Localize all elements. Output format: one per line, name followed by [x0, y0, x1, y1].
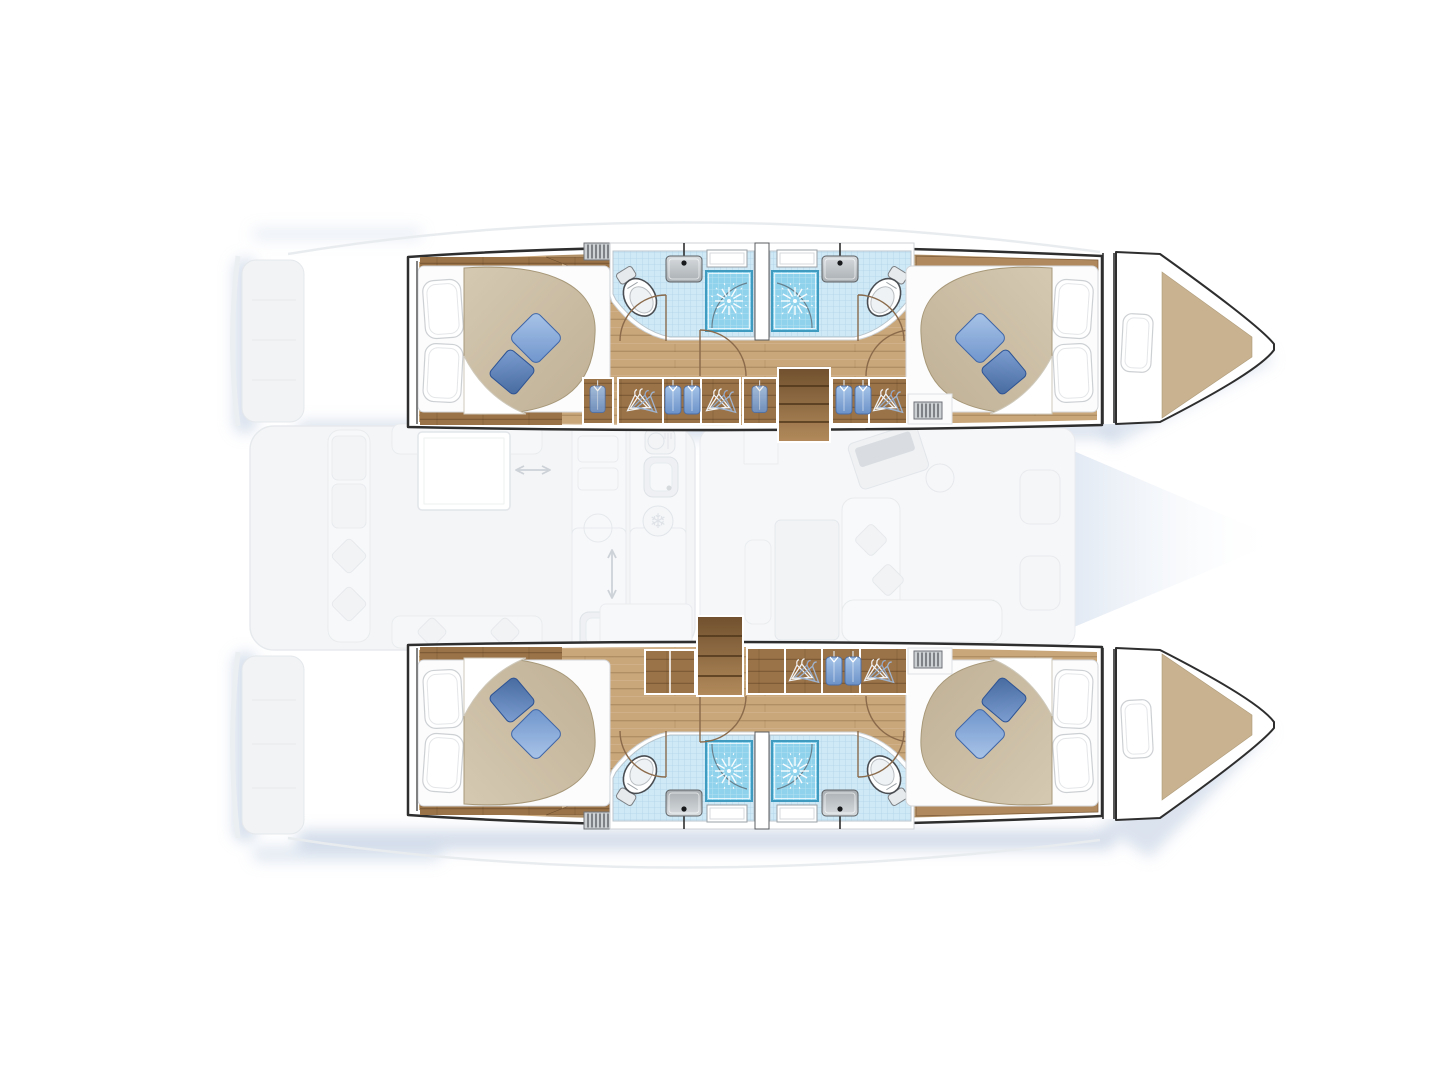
swim-platform-top — [242, 260, 304, 422]
vent-grate — [914, 651, 942, 668]
swim-platform-bottom — [242, 656, 304, 834]
cockpit-cushion — [332, 436, 366, 480]
companionway-steps-lower — [697, 616, 743, 696]
cockpit-table — [418, 432, 510, 510]
vent-grate — [914, 402, 942, 419]
salon-bench — [745, 540, 771, 624]
yacht-layout-canvas: ❄ ❄ — [0, 0, 1440, 1080]
salon-table — [775, 520, 839, 640]
floorplan-svg: ❄ ❄ — [0, 0, 1440, 1080]
fridge-icon-top: ❄ — [643, 506, 673, 536]
dish-locker-icon — [645, 428, 675, 454]
companionway-steps-upper — [778, 368, 830, 442]
svg-text:❄: ❄ — [650, 509, 667, 533]
salon-sofa-horizontal — [842, 600, 1002, 642]
foredeck-seat-bottom — [1020, 556, 1060, 610]
galley-sink-top — [644, 457, 678, 497]
foredeck-seat-top — [1020, 470, 1060, 524]
cockpit-cushion — [332, 484, 366, 528]
